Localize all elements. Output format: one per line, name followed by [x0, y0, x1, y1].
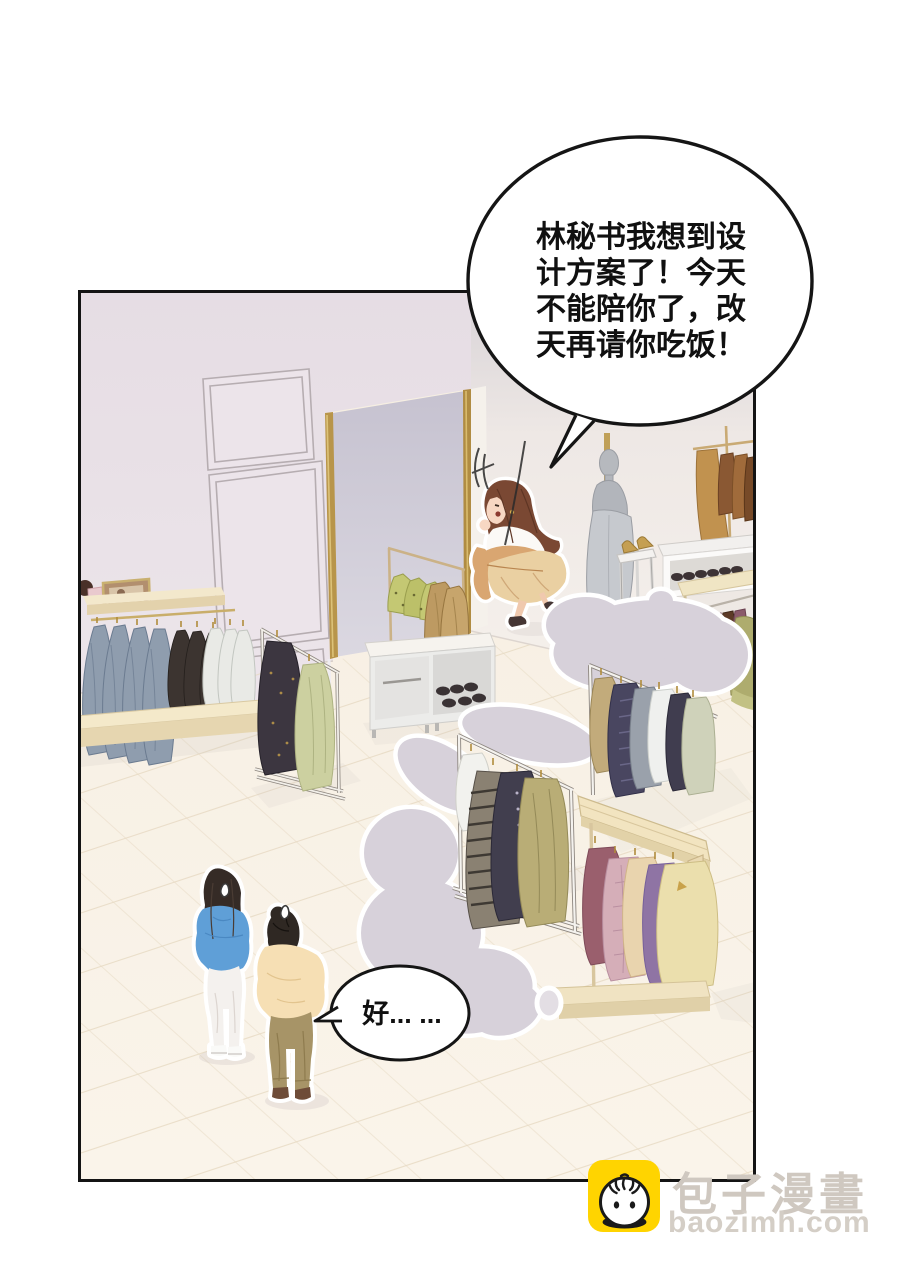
comic-panel	[78, 290, 756, 1182]
baozi-bun-icon	[588, 1160, 660, 1232]
olive-dress	[518, 778, 569, 927]
smoke-puff-small	[537, 988, 561, 1018]
sweat-drop	[221, 884, 229, 897]
comic-page: 林秘书我想到设 计方案了！今天 不能陪你了，改 天再请你吃饭！ 好... ...…	[0, 0, 900, 1266]
store-scene	[81, 293, 753, 1179]
speech-text-reply: 好... ...	[342, 997, 462, 1033]
watermark: 包子漫畫 baozimh.com	[586, 1158, 900, 1258]
sweat-drop	[281, 906, 289, 919]
watermark-domain: baozimh.com	[668, 1206, 900, 1240]
speech-text-main: 林秘书我想到设 计方案了！今天 不能陪你了，改 天再请你吃饭！	[530, 220, 752, 370]
sage-dress	[295, 663, 335, 791]
open-mouth	[495, 511, 500, 516]
